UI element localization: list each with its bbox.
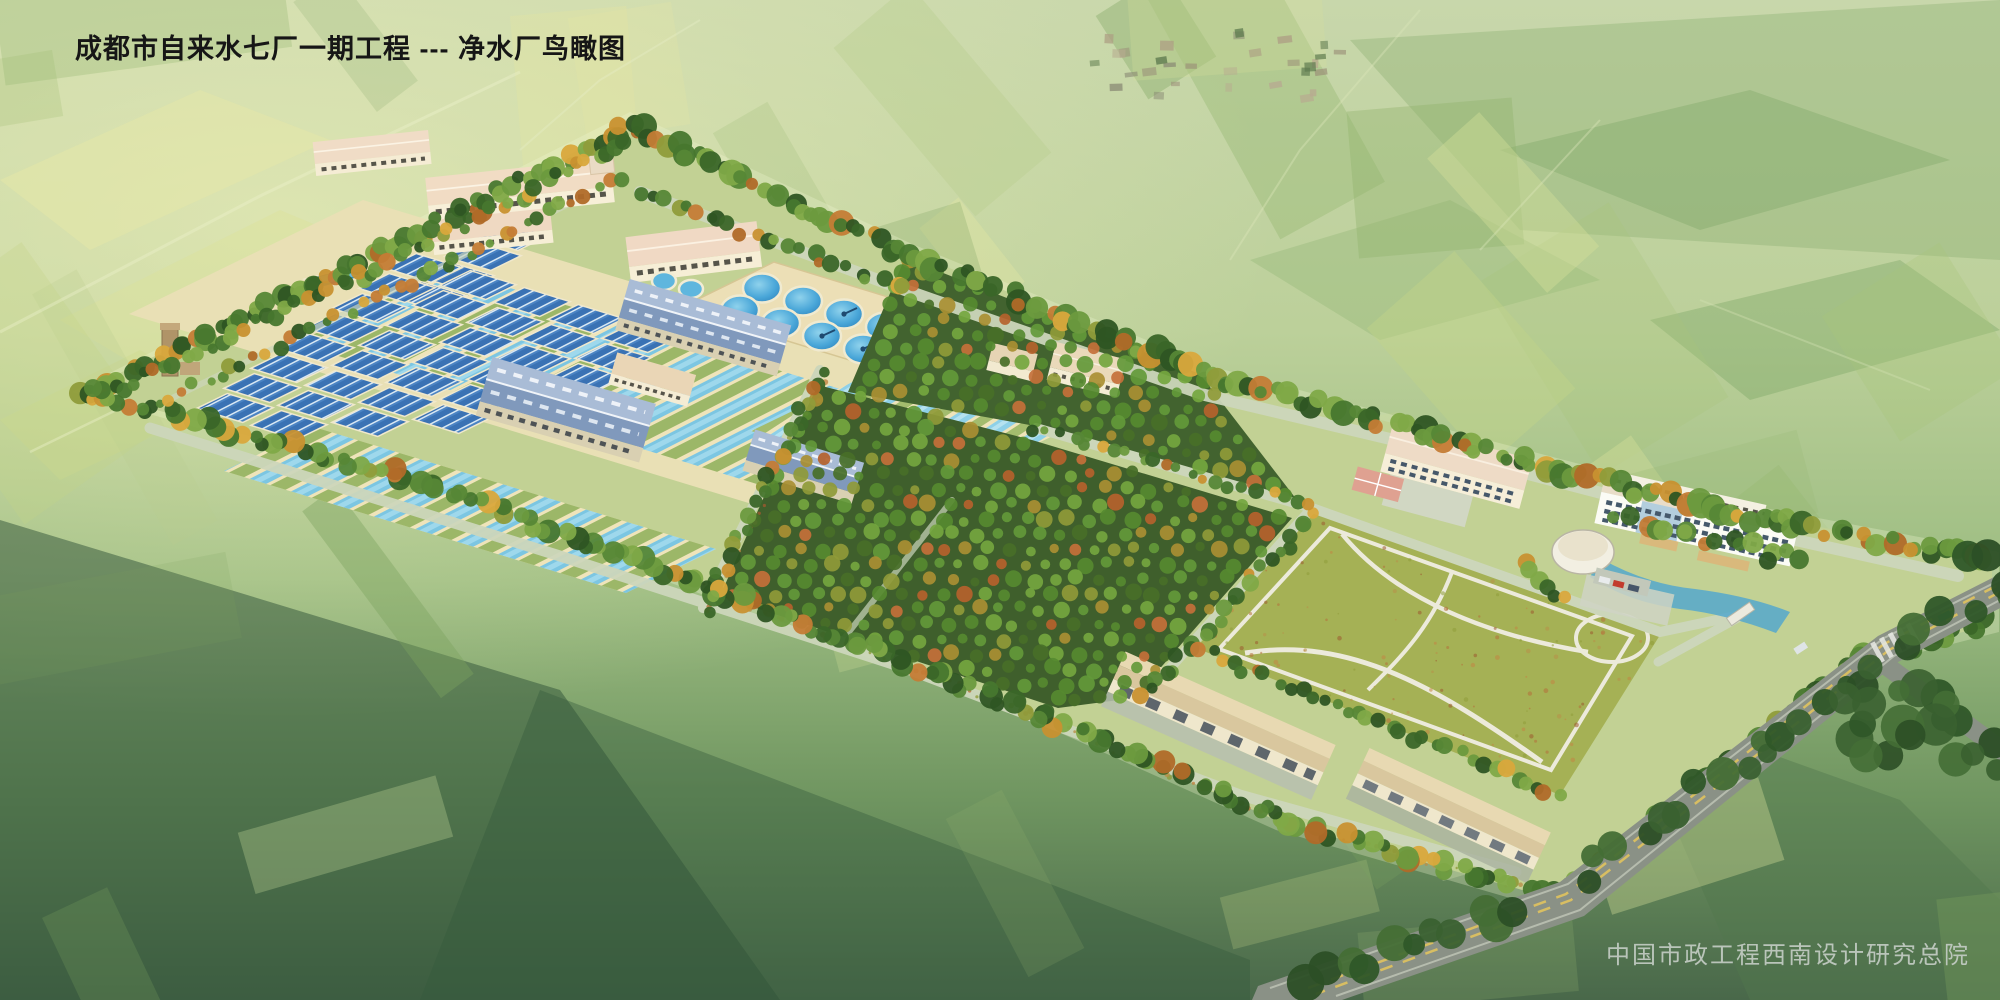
round-hall-roof [1558, 531, 1608, 561]
page-title: 成都市自来水七厂一期工程 --- 净水厂鸟瞰图 [75, 33, 626, 64]
aerial-rendering-water-plant: 成都市自来水七厂一期工程 --- 净水厂鸟瞰图 中国市政工程西南设计研究总院 [0, 0, 2000, 1000]
birdseye-scene: 成都市自来水七厂一期工程 --- 净水厂鸟瞰图 中国市政工程西南设计研究总院 [0, 0, 2000, 1000]
credit-text: 中国市政工程西南设计研究总院 [1606, 942, 1970, 969]
